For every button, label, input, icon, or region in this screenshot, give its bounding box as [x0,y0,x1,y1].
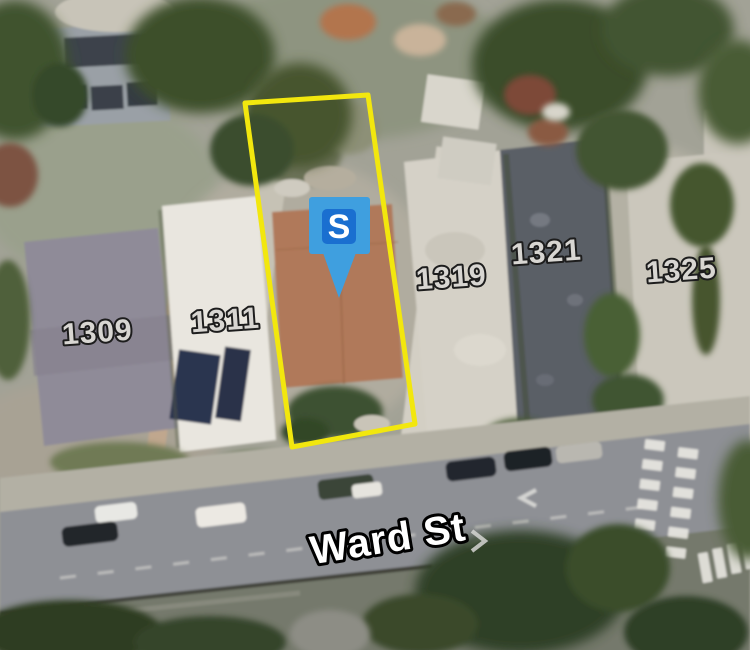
marker-letter: S [328,208,351,246]
address-label-1319: 1319 [415,259,488,297]
address-label-1325: 1325 [645,252,718,290]
satellite-map-canvas[interactable]: 1309 1311 1319 1321 1325 Ward St S [0,0,750,650]
address-label-1321: 1321 [510,234,583,272]
satellite-map-view[interactable]: 1309 1311 1319 1321 1325 Ward St S [0,0,750,650]
address-label-1311: 1311 [190,302,261,340]
address-label-1309: 1309 [61,314,134,352]
